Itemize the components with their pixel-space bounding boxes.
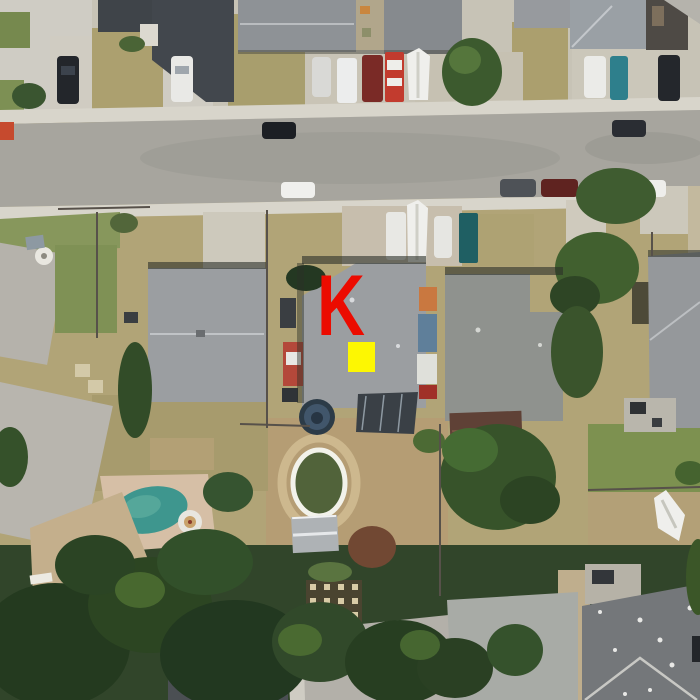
covered-car bbox=[419, 287, 437, 311]
front-lawn bbox=[478, 214, 534, 266]
tree-mass bbox=[157, 529, 253, 595]
car bbox=[312, 57, 331, 97]
truck bbox=[362, 55, 383, 102]
aerial-photo: K bbox=[0, 0, 700, 700]
driveway bbox=[203, 212, 265, 268]
tree-highlight bbox=[449, 46, 481, 74]
rv-roof bbox=[387, 60, 402, 70]
green-lawn bbox=[55, 245, 117, 333]
tree bbox=[576, 168, 656, 224]
tree bbox=[110, 213, 138, 233]
tree bbox=[500, 476, 560, 524]
road-wear-patch bbox=[140, 132, 560, 184]
tree-highlight bbox=[115, 572, 165, 608]
k-letter-marker[interactable]: K bbox=[317, 258, 365, 354]
house-shadow bbox=[297, 263, 304, 403]
car-on-road bbox=[281, 182, 315, 198]
house-roof bbox=[514, 0, 572, 28]
house-shadow bbox=[445, 267, 563, 275]
bbq-grill bbox=[630, 402, 646, 414]
ac-unit bbox=[124, 312, 138, 323]
tree-highlight bbox=[400, 630, 440, 660]
oval-garden-ring bbox=[293, 450, 345, 516]
house-shadow bbox=[148, 262, 266, 269]
roof-vent bbox=[396, 344, 400, 348]
truck bbox=[386, 212, 406, 260]
covered-car bbox=[417, 354, 437, 384]
roof-vent bbox=[538, 343, 542, 347]
van bbox=[459, 213, 478, 263]
car bbox=[280, 298, 296, 328]
van bbox=[337, 58, 357, 103]
clutter bbox=[360, 6, 370, 14]
shrub-row bbox=[308, 562, 352, 582]
car bbox=[610, 56, 628, 100]
fence-shadow bbox=[238, 50, 464, 54]
house-roof bbox=[238, 0, 356, 52]
rv bbox=[385, 52, 404, 102]
chimney bbox=[196, 330, 205, 337]
car bbox=[419, 385, 437, 399]
car bbox=[171, 56, 193, 102]
covered-car bbox=[418, 314, 437, 352]
car bbox=[658, 55, 680, 101]
tree bbox=[12, 83, 46, 109]
car-windshield bbox=[175, 66, 189, 74]
car bbox=[434, 216, 452, 258]
car-edge bbox=[0, 122, 14, 140]
car-windshield bbox=[61, 66, 75, 75]
dirt-patch bbox=[150, 438, 214, 470]
patio-umbrella-center bbox=[41, 253, 47, 259]
car-on-road bbox=[612, 120, 646, 137]
tree-highlight bbox=[442, 428, 498, 472]
clutter bbox=[652, 6, 664, 26]
tree bbox=[119, 36, 145, 52]
tree bbox=[487, 624, 543, 676]
garden-bed bbox=[75, 364, 90, 377]
house-roof bbox=[570, 0, 646, 49]
rv-roof bbox=[387, 78, 402, 86]
tarp bbox=[25, 235, 45, 250]
roof-vent bbox=[476, 328, 481, 333]
car-on-road bbox=[262, 122, 296, 139]
clutter bbox=[362, 28, 371, 37]
car bbox=[57, 56, 79, 104]
grass-patch bbox=[0, 12, 30, 48]
car-edge bbox=[692, 636, 700, 662]
house-roof bbox=[384, 0, 462, 54]
patio-furniture bbox=[652, 418, 662, 427]
garden-bed bbox=[88, 380, 103, 393]
patio-furniture bbox=[592, 570, 614, 584]
car bbox=[282, 388, 298, 402]
tree bbox=[551, 306, 603, 398]
car bbox=[584, 56, 606, 98]
tree bbox=[203, 472, 253, 512]
parked-car bbox=[541, 179, 578, 197]
tree-red-leaf bbox=[348, 526, 396, 568]
conifer bbox=[118, 342, 152, 438]
house-shadow bbox=[648, 250, 700, 257]
tree-highlight bbox=[278, 624, 322, 656]
parked-car bbox=[500, 179, 536, 197]
hot-tub-center bbox=[188, 520, 192, 524]
above-ground-pool-center bbox=[311, 412, 323, 424]
